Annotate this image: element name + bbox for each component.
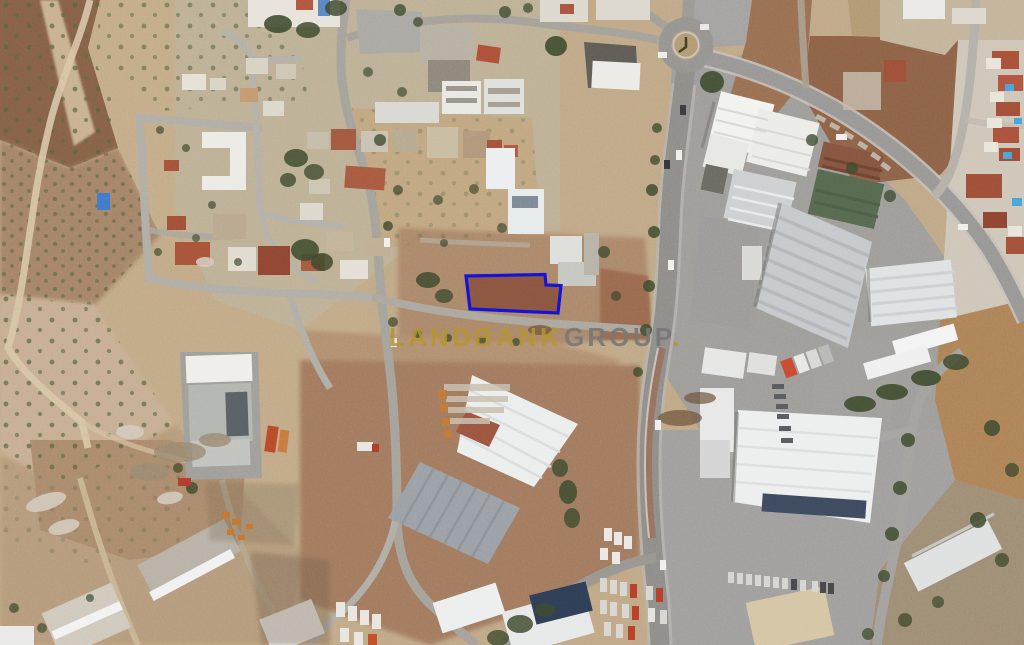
svg-text:GROUP.: GROUP. (564, 322, 682, 352)
svg-text:LANDBANK: LANDBANK (389, 322, 562, 352)
